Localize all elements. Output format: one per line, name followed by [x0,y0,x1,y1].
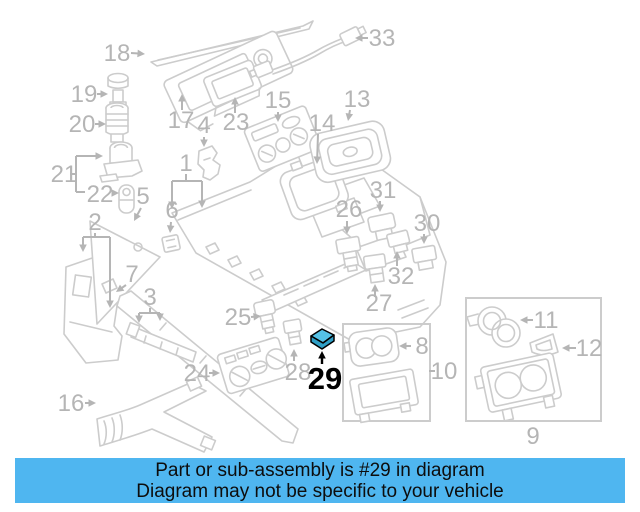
leader-arrowhead [99,120,107,128]
leader-arrowhead [137,50,145,58]
part-label-7: 7 [125,261,138,288]
part-label-3: 3 [143,284,156,311]
leader-arrowhead [562,344,570,352]
leader-arrowhead [346,113,353,121]
part-label-14: 14 [309,110,336,137]
part-label-15: 15 [265,87,292,114]
parts-diagram-image: 1819202122256731417231514133326313032272… [0,0,640,512]
leader-arrowhead [290,349,298,357]
part-label-33: 33 [369,25,396,52]
part-label-29: 29 [308,361,342,396]
part-label-4: 4 [197,112,210,139]
part-label-24: 24 [184,360,211,387]
leader-arrowhead [167,225,175,233]
part-9-cupholder-assembly [473,352,564,425]
leader-arrowhead [79,245,87,253]
leader-arrowhead [200,140,208,148]
part-label-20: 20 [69,111,96,138]
part-20-lighter-socket [106,103,128,142]
leader-arrowhead [520,316,528,324]
part-22-button [119,185,134,213]
part-4-bracket [198,146,220,180]
part-label-12: 12 [576,335,603,362]
part-10-storage-tray [349,369,420,423]
part-label-30: 30 [414,210,441,237]
part-label-1: 1 [179,150,192,177]
part-label-25: 25 [225,304,252,331]
notice-line-1: Part or sub-assembly is #29 in diagram [15,460,625,481]
part-11-rubber-mat [467,307,520,347]
leader-arrowhead [101,90,109,98]
notice-banner: Part or sub-assembly is #29 in diagram D… [15,458,625,503]
leader-arrowhead [318,351,326,359]
part-label-9: 9 [526,423,539,450]
part-label-32: 32 [388,263,415,290]
part-12-rubber-insert [530,334,558,355]
part-label-31: 31 [370,177,397,204]
notice-line-2: Diagram may not be specific to your vehi… [15,481,625,502]
part-label-19: 19 [71,81,98,108]
part-label-2: 2 [88,209,101,236]
part-21-socket-bracket [100,142,142,182]
part-28-switch [283,319,304,346]
part-29-highlighted-switch [311,329,334,349]
part-24-climate-control [217,336,292,395]
part-label-8: 8 [415,333,428,360]
part-label-11: 11 [534,307,559,334]
parts-diagram-page: 1819202122256731417231514133326313032272… [0,0,640,512]
part-label-10: 10 [431,358,458,385]
leader-line [317,134,318,160]
part-label-5: 5 [136,183,149,210]
part-label-18: 18 [104,40,131,67]
leader-arrowhead [89,399,97,407]
part-label-17: 17 [168,107,195,134]
part-16-air-duct [97,377,215,452]
part-label-26: 26 [336,196,363,223]
part-label-13: 13 [344,86,371,113]
part-label-21: 21 [51,161,78,188]
leader-arrowhead [399,342,407,350]
leader-arrowhead [96,152,104,160]
part-label-22: 22 [87,181,114,208]
part-label-23: 23 [223,109,250,136]
part-label-27: 27 [366,290,393,317]
part-label-16: 16 [58,390,85,417]
part-6-clip [162,234,181,252]
